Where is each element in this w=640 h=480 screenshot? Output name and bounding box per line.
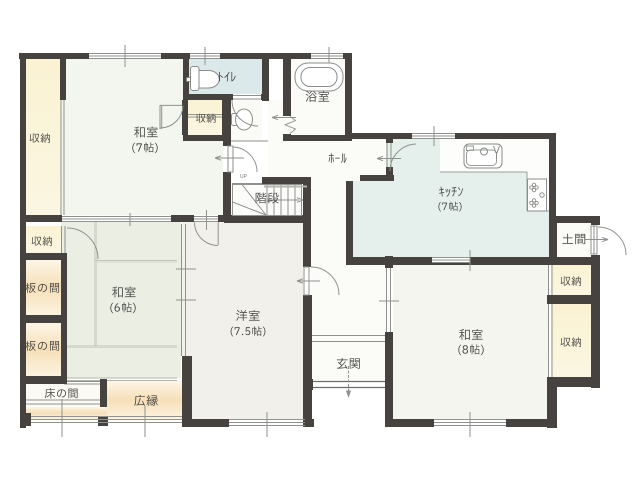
svg-text:UP: UP (240, 174, 248, 180)
